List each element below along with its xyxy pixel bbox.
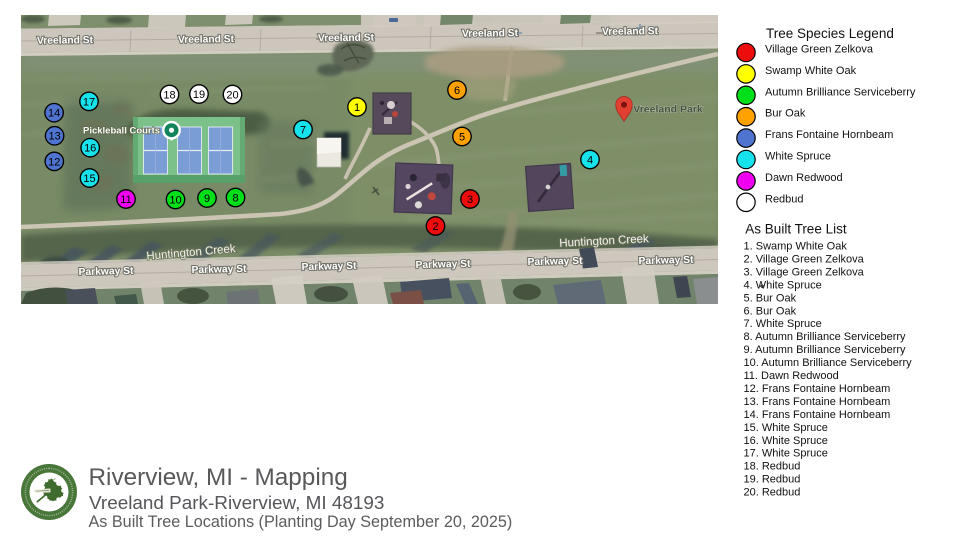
- svg-text:4. White Spruce: 4. White Spruce: [744, 279, 822, 291]
- svg-text:18: 18: [163, 89, 175, 101]
- svg-text:5: 5: [459, 131, 465, 143]
- svg-text:Vreeland Park: Vreeland Park: [633, 104, 703, 116]
- svg-text:Autumn Brilliance Serviceberry: Autumn Brilliance Serviceberry: [765, 86, 916, 98]
- svg-text:9: 9: [204, 193, 210, 205]
- svg-text:As Built Tree List: As Built Tree List: [745, 222, 847, 237]
- svg-text:12: 12: [48, 156, 60, 168]
- svg-text:Parkway St: Parkway St: [527, 256, 583, 268]
- svg-text:16: 16: [84, 143, 96, 155]
- svg-text:Swamp White Oak: Swamp White Oak: [765, 65, 857, 77]
- svg-text:Parkway St: Parkway St: [191, 264, 247, 276]
- svg-text:Parkway St: Parkway St: [78, 266, 134, 278]
- svg-text:18. Redbud: 18. Redbud: [744, 461, 801, 473]
- svg-text:11. Dawn Redwood: 11. Dawn Redwood: [744, 370, 839, 382]
- svg-text:Vreeland St: Vreeland St: [37, 35, 94, 47]
- svg-text:Tree Species Legend: Tree Species Legend: [766, 26, 894, 41]
- svg-text:19: 19: [193, 89, 205, 101]
- svg-text:9. Autumn Brilliance Servicebe: 9. Autumn Brilliance Serviceberry: [744, 344, 907, 356]
- svg-text:20: 20: [226, 89, 238, 101]
- svg-text:Pickleball Courts: Pickleball Courts: [83, 126, 160, 137]
- svg-text:Frans Fontaine Hornbeam: Frans Fontaine Hornbeam: [765, 129, 893, 141]
- svg-text:1. Swamp White Oak: 1. Swamp White Oak: [744, 241, 848, 253]
- svg-text:Dawn Redwood: Dawn Redwood: [765, 172, 843, 184]
- svg-text:20. Redbud: 20. Redbud: [744, 487, 801, 499]
- svg-text:8. Autumn Brilliance Servicebe: 8. Autumn Brilliance Serviceberry: [744, 331, 907, 343]
- svg-text:3. Village Green Zelkova: 3. Village Green Zelkova: [744, 266, 865, 278]
- svg-text:17. White Spruce: 17. White Spruce: [744, 448, 828, 460]
- svg-text:15. White Spruce: 15. White Spruce: [744, 422, 828, 434]
- svg-text:Redbud: Redbud: [765, 193, 804, 205]
- svg-text:16. White Spruce: 16. White Spruce: [744, 435, 828, 447]
- svg-text:Vreeland St: Vreeland St: [178, 34, 235, 46]
- svg-text:Village Green Zelkova: Village Green Zelkova: [765, 44, 874, 56]
- svg-text:1: 1: [354, 102, 360, 114]
- svg-text:3: 3: [467, 194, 473, 206]
- svg-text:10: 10: [169, 194, 181, 206]
- svg-text:12. Frans Fontaine Hornbeam: 12. Frans Fontaine Hornbeam: [744, 383, 891, 395]
- svg-text:11: 11: [120, 194, 131, 206]
- svg-text:10. Autumn Brilliance Serviceb: 10. Autumn Brilliance Serviceberry: [744, 357, 913, 369]
- svg-text:White Spruce: White Spruce: [765, 151, 831, 163]
- svg-text:8: 8: [232, 192, 238, 204]
- svg-text:19. Redbud: 19. Redbud: [744, 474, 801, 486]
- svg-text:Vreeland St: Vreeland St: [602, 26, 659, 38]
- svg-text:2: 2: [432, 221, 438, 233]
- svg-text:7: 7: [300, 124, 306, 136]
- svg-text:15: 15: [83, 173, 95, 185]
- svg-text:14. Frans Fontaine Hornbeam: 14. Frans Fontaine Hornbeam: [744, 409, 891, 421]
- svg-text:6: 6: [454, 85, 460, 97]
- svg-text:Vreeland St: Vreeland St: [462, 28, 519, 40]
- svg-text:Parkway St: Parkway St: [638, 255, 694, 267]
- svg-text:2. Village Green Zelkova: 2. Village Green Zelkova: [744, 254, 865, 266]
- svg-text:6. Bur Oak: 6. Bur Oak: [744, 305, 797, 317]
- svg-text:Vreeland St: Vreeland St: [318, 33, 375, 45]
- svg-text:17: 17: [83, 96, 95, 108]
- svg-text:13. Frans Fontaine Hornbeam: 13. Frans Fontaine Hornbeam: [744, 396, 891, 408]
- svg-text:Parkway St: Parkway St: [301, 261, 357, 273]
- svg-text:13: 13: [48, 131, 60, 143]
- svg-text:5. Bur Oak: 5. Bur Oak: [744, 292, 797, 304]
- svg-text:14: 14: [48, 108, 60, 120]
- svg-text:4: 4: [587, 154, 593, 166]
- svg-text:7. White Spruce: 7. White Spruce: [744, 318, 822, 330]
- svg-text:Parkway St: Parkway St: [415, 259, 471, 271]
- svg-text:Bur Oak: Bur Oak: [765, 108, 806, 120]
